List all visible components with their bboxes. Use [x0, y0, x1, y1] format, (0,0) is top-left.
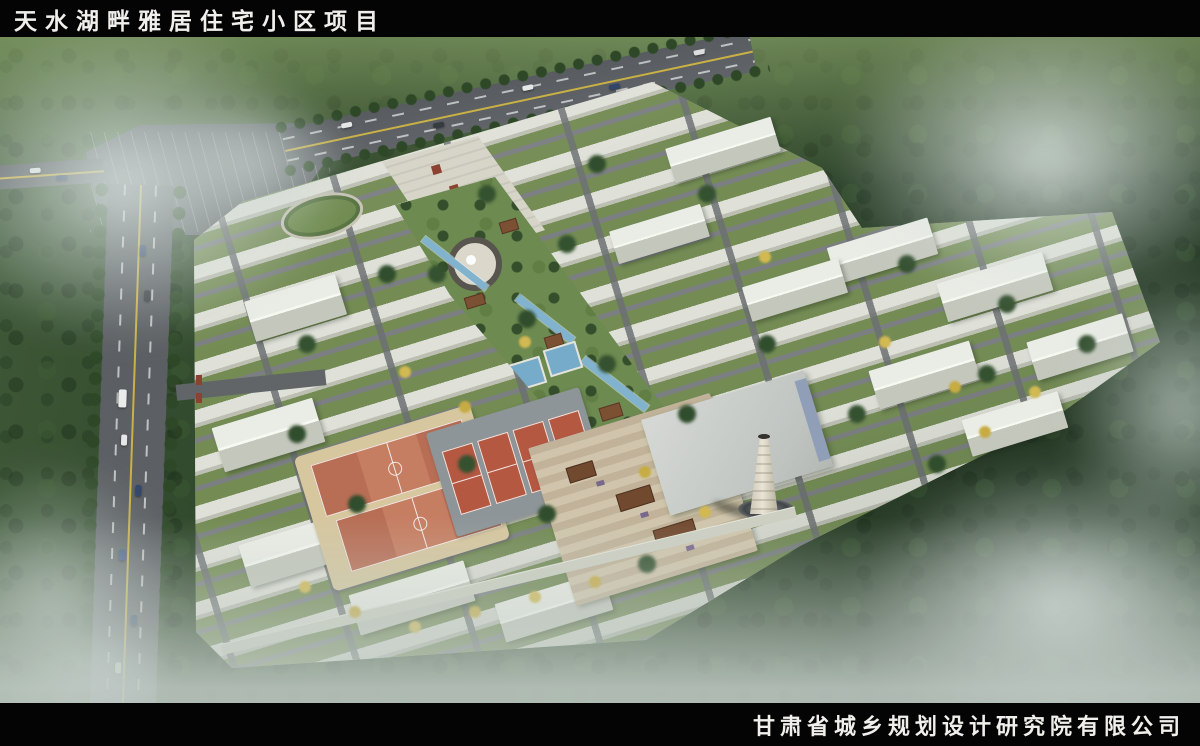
rendering-board: 天水湖畔雅居住宅小区项目 [0, 0, 1200, 746]
title-bar: 天水湖畔雅居住宅小区项目 [0, 0, 1200, 37]
aerial-rendering [0, 37, 1200, 703]
credit-bar: 甘肃省城乡规划设计研究院有限公司 [0, 703, 1200, 746]
project-title: 天水湖畔雅居住宅小区项目 [14, 2, 386, 36]
atmospheric-haze [0, 37, 1200, 703]
design-institute-name: 甘肃省城乡规划设计研究院有限公司 [753, 709, 1185, 741]
